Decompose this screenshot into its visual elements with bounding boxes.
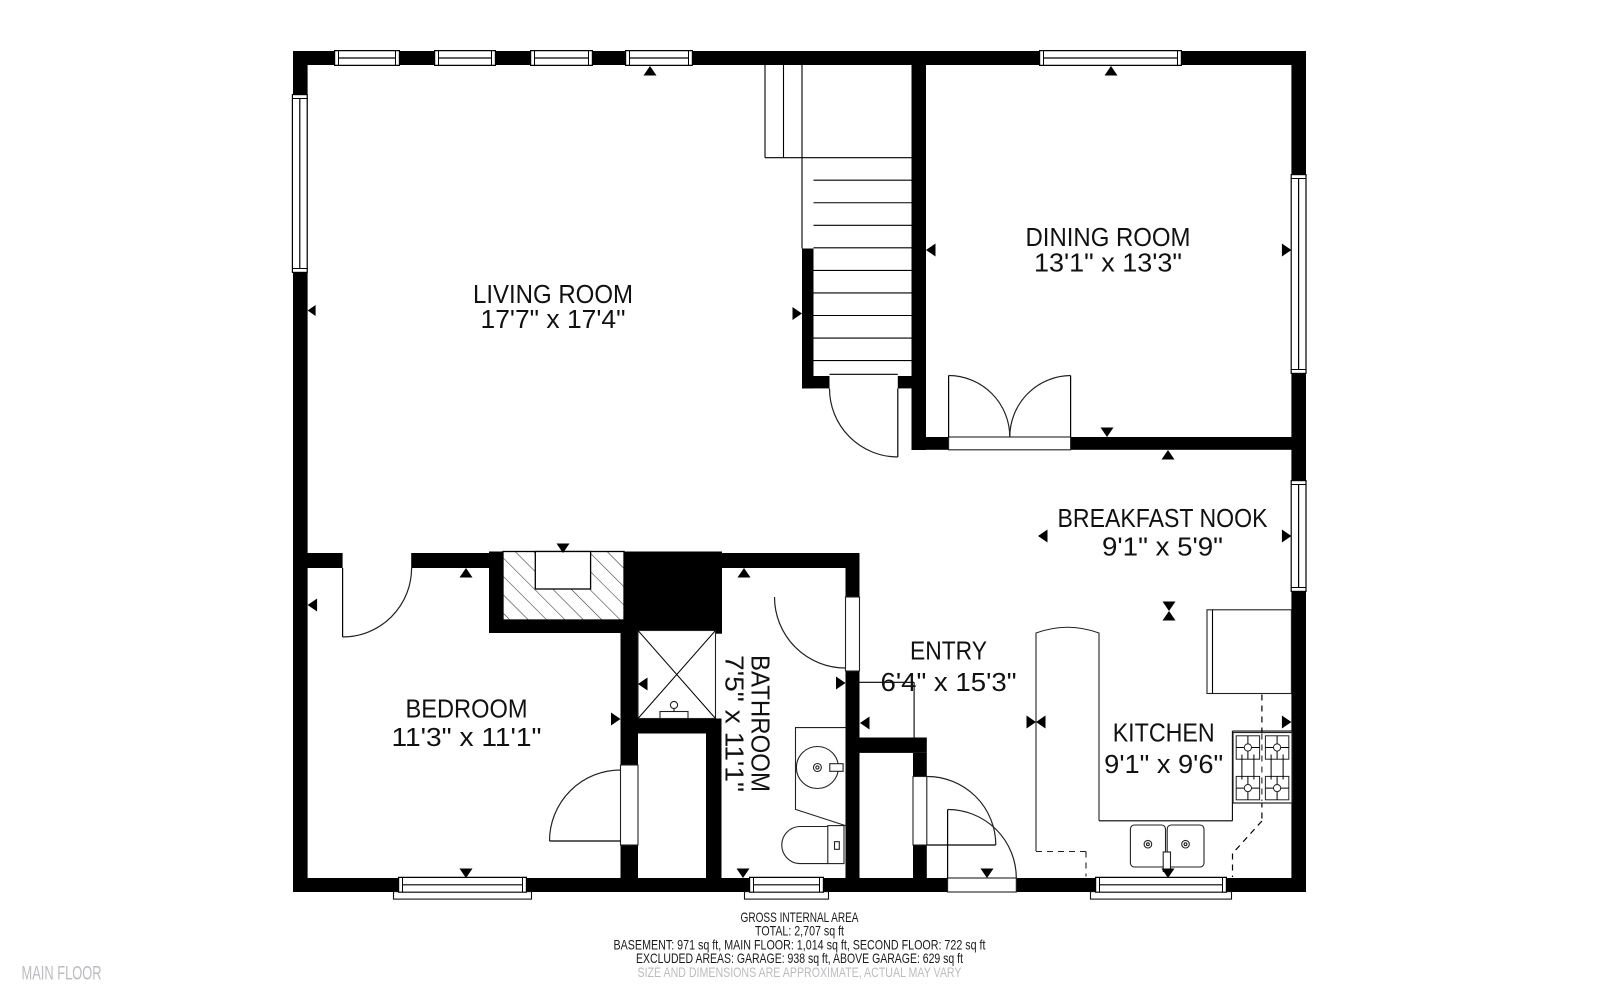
svg-text:17'7" x 17'4": 17'7" x 17'4": [481, 306, 626, 334]
svg-text:SIZE AND DIMENSIONS ARE APPROX: SIZE AND DIMENSIONS ARE APPROXIMATE, ACT…: [638, 964, 962, 980]
svg-text:BREAKFAST NOOK: BREAKFAST NOOK: [1058, 505, 1268, 533]
svg-text:BEDROOM: BEDROOM: [406, 696, 528, 724]
svg-text:6'4" x 15'3": 6'4" x 15'3": [881, 669, 1017, 697]
svg-text:DINING ROOM: DINING ROOM: [1026, 224, 1191, 252]
svg-text:9'1" x 9'6": 9'1" x 9'6": [1104, 751, 1223, 779]
svg-text:LIVING ROOM: LIVING ROOM: [473, 281, 633, 309]
svg-text:BATHROOM: BATHROOM: [746, 655, 774, 792]
svg-text:ENTRY: ENTRY: [910, 638, 987, 666]
svg-text:MAIN FLOOR: MAIN FLOOR: [22, 963, 102, 985]
svg-text:13'1" x 13'3": 13'1" x 13'3": [1034, 250, 1182, 278]
svg-text:9'1" x 5'9": 9'1" x 5'9": [1102, 534, 1223, 562]
svg-text:KITCHEN: KITCHEN: [1113, 720, 1215, 748]
svg-text:11'3" x 11'1": 11'3" x 11'1": [392, 724, 542, 752]
svg-text:7'5" x 11'1": 7'5" x 11'1": [720, 655, 748, 792]
